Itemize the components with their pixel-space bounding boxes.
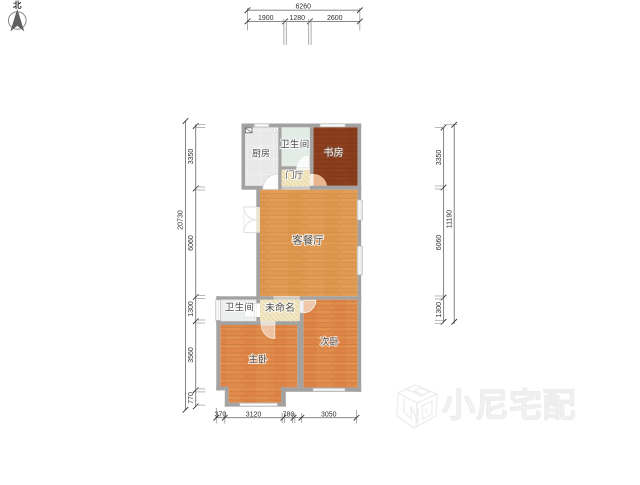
svg-text:厨房: 厨房	[252, 148, 270, 159]
svg-text:780: 780	[283, 411, 295, 418]
svg-text:11190: 11190	[447, 210, 454, 229]
svg-text:门厅: 门厅	[285, 169, 303, 180]
svg-text:客餐厅: 客餐厅	[292, 234, 324, 247]
svg-text:小尼宅配: 小尼宅配	[442, 387, 576, 424]
svg-text:卫生间: 卫生间	[225, 302, 254, 314]
svg-text:20730: 20730	[178, 210, 185, 230]
svg-text:未命名: 未命名	[265, 301, 295, 314]
svg-text:1900: 1900	[258, 15, 274, 22]
svg-text:3350: 3350	[436, 150, 443, 166]
svg-text:1280: 1280	[290, 15, 306, 22]
svg-text:主卧: 主卧	[248, 353, 268, 365]
svg-text:6260: 6260	[296, 4, 312, 11]
svg-text:北: 北	[13, 0, 22, 10]
svg-text:6060: 6060	[436, 235, 443, 251]
svg-text:卫生间: 卫生间	[280, 139, 309, 151]
svg-text:370: 370	[215, 411, 227, 418]
svg-text:1300: 1300	[188, 301, 195, 317]
svg-text:次卧: 次卧	[320, 336, 340, 348]
svg-text:1300: 1300	[436, 302, 443, 318]
svg-text:2600: 2600	[327, 15, 343, 22]
svg-text:书房: 书房	[324, 146, 344, 159]
svg-text:3560: 3560	[188, 347, 195, 363]
svg-text:770: 770	[188, 392, 195, 404]
svg-text:3350: 3350	[188, 149, 195, 165]
svg-text:6060: 6060	[188, 235, 195, 251]
svg-text:3120: 3120	[246, 411, 262, 418]
svg-text:3050: 3050	[321, 411, 337, 418]
